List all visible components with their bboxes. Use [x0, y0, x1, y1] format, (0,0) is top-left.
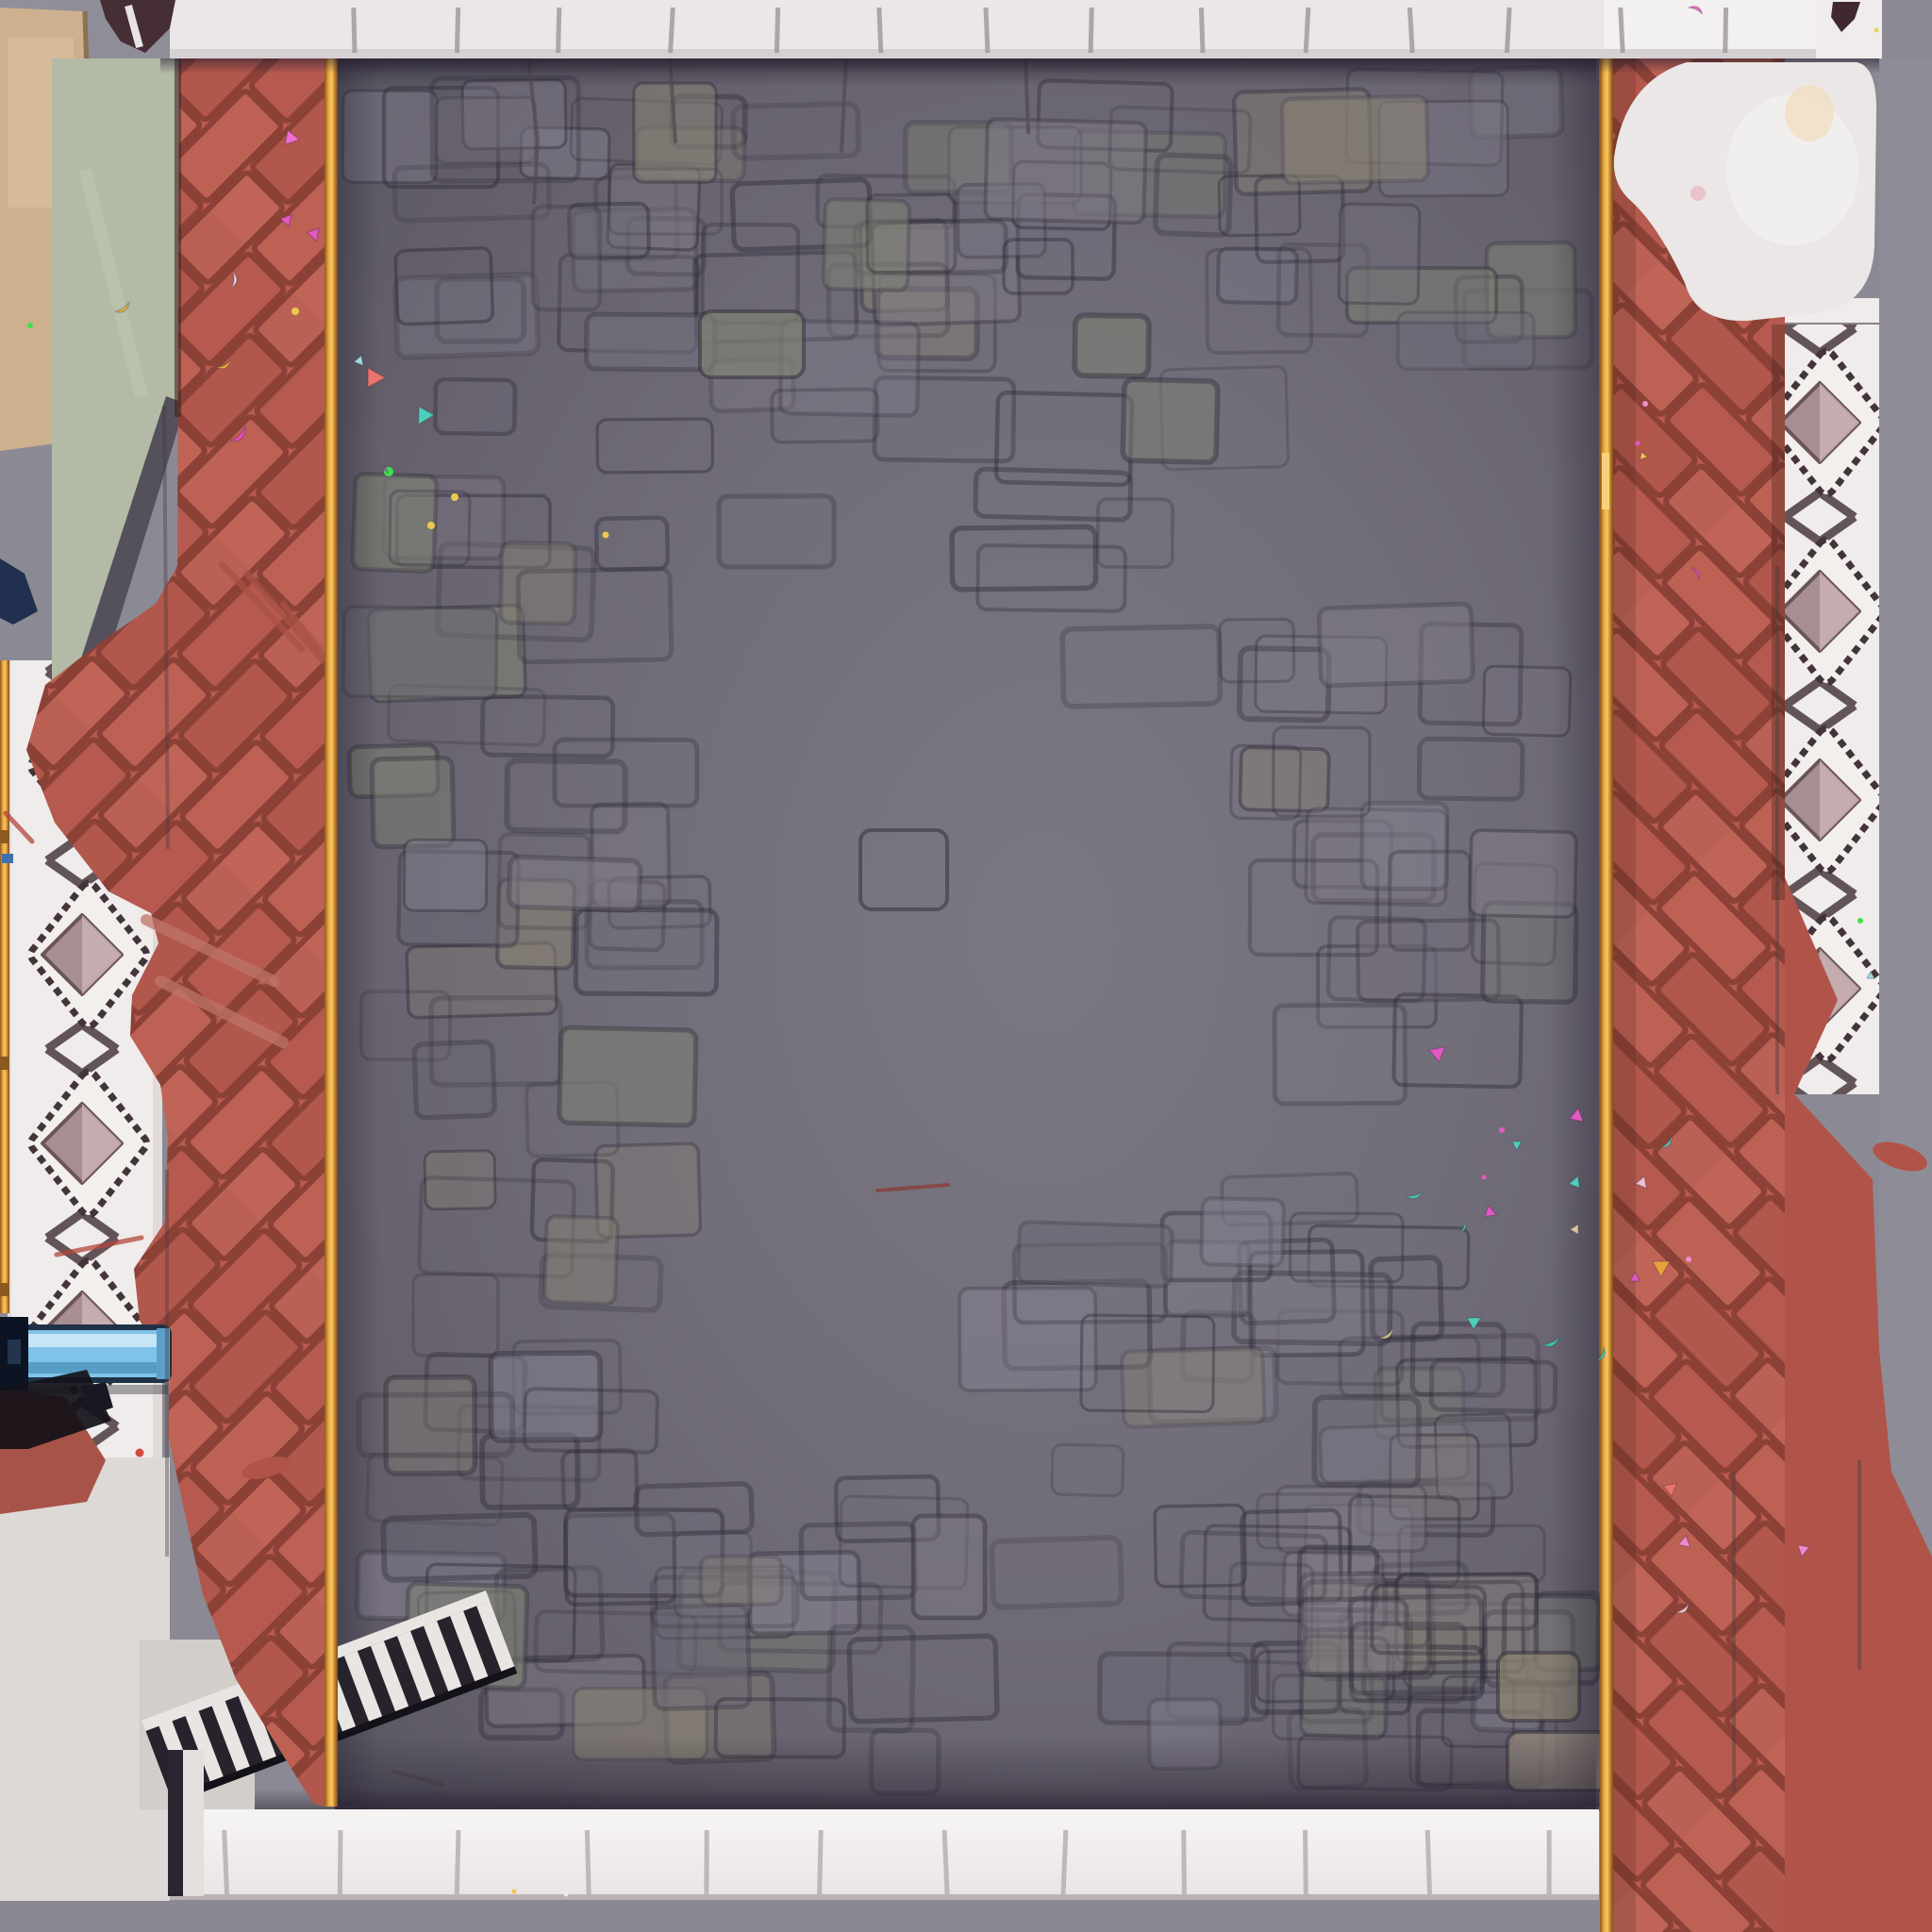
tile-joint	[354, 8, 355, 53]
tile-joint	[1409, 8, 1412, 53]
cobble	[575, 909, 717, 994]
tile-joint	[1306, 1830, 1307, 1894]
confetti-piece	[451, 493, 458, 501]
tile-joint	[340, 1830, 341, 1894]
cobble	[501, 542, 575, 624]
cobble	[1274, 1005, 1406, 1104]
cobble	[1362, 803, 1447, 889]
confetti-piece	[512, 1890, 517, 1894]
cobble	[1398, 312, 1534, 370]
gold-trim-left	[325, 58, 338, 1807]
confetti-piece	[427, 522, 435, 529]
tile-joint	[587, 1830, 589, 1894]
cobble	[1052, 1444, 1124, 1496]
top-tile-band	[160, 0, 1879, 58]
confetti-piece	[1874, 28, 1879, 33]
step-edge-light	[183, 1750, 204, 1896]
cobble	[1074, 315, 1149, 376]
cobble	[587, 314, 715, 370]
confetti-piece	[27, 323, 33, 328]
gray-column-right	[1879, 58, 1932, 1568]
bottom-tile-band	[57, 1789, 1604, 1900]
cobble	[1240, 747, 1329, 811]
cobble	[652, 1605, 750, 1709]
tile-joint	[457, 1830, 458, 1894]
tile-joint	[776, 8, 777, 53]
tile-joint	[1725, 8, 1726, 53]
feature-stone	[700, 311, 804, 377]
stone-left-shadow	[337, 58, 380, 1807]
tile-joint	[1507, 8, 1509, 53]
tile-joint	[1306, 8, 1308, 53]
cobble	[533, 207, 600, 309]
confetti-piece	[1482, 1175, 1487, 1180]
cobble	[959, 1288, 1096, 1391]
game-map-canvas[interactable]	[0, 0, 1932, 1932]
cobble	[701, 1557, 781, 1605]
tile-joint	[944, 1830, 947, 1894]
tile-fragment-topright	[1816, 0, 1882, 58]
cobble	[395, 274, 539, 358]
tile-joint	[820, 1830, 822, 1894]
cobble	[436, 97, 536, 163]
red-lane-right-shadow	[1611, 58, 1636, 1932]
tile-joint	[1427, 1830, 1429, 1894]
cobble	[913, 1516, 985, 1618]
top-seam-shadow	[160, 58, 1879, 74]
blob-peach-smudge	[1785, 85, 1834, 142]
confetti-piece	[1642, 401, 1648, 407]
cobble	[1397, 1574, 1537, 1628]
cobble	[1319, 604, 1473, 686]
tile-joint	[558, 8, 559, 53]
tile-joint	[1091, 8, 1091, 53]
cobble	[1314, 1397, 1419, 1486]
cobble	[1122, 1347, 1265, 1427]
tile-joint	[671, 8, 674, 53]
tile-joint	[1621, 8, 1623, 53]
red-lane-left-seam	[175, 58, 181, 417]
cobble	[1123, 379, 1218, 462]
pipe-highlight	[9, 1334, 160, 1347]
tile-joint	[879, 8, 881, 53]
confetti-piece	[291, 308, 299, 315]
step-edge-dark	[168, 1750, 183, 1896]
gold-trim-right	[1600, 58, 1613, 1932]
scallop-band-gold-edge	[0, 660, 9, 1313]
stone-right-shadow	[1549, 58, 1600, 1807]
tile-joint	[457, 8, 458, 53]
cobble	[544, 1216, 618, 1305]
tile-joint	[1184, 1830, 1185, 1894]
cobble	[1339, 204, 1420, 304]
cobble	[1282, 96, 1428, 183]
cobble	[991, 1538, 1122, 1607]
blob-pink-dot	[1690, 186, 1706, 201]
cobble	[372, 758, 454, 847]
cobble	[508, 857, 641, 911]
gold-glint	[1602, 453, 1609, 509]
confetti-piece	[564, 1892, 569, 1897]
confetti-piece	[603, 532, 609, 539]
tile-joint	[1201, 8, 1203, 53]
pipe-clamp-notch	[8, 1340, 21, 1364]
cobble	[1201, 1198, 1284, 1266]
confetti-piece	[136, 1449, 144, 1457]
cobble	[559, 1027, 696, 1125]
tile-joint	[225, 1830, 227, 1894]
blue-speck	[2, 854, 13, 863]
cobble	[1234, 1273, 1391, 1344]
confetti-piece	[1499, 1127, 1505, 1133]
confetti-piece	[1857, 918, 1863, 924]
tile-joint	[1063, 1830, 1066, 1894]
cobble	[386, 1377, 475, 1474]
cobble	[404, 840, 487, 911]
confetti-piece	[1686, 1257, 1691, 1262]
cobble	[414, 1041, 495, 1118]
tile-joint	[986, 8, 988, 53]
confetti-piece	[1636, 441, 1641, 446]
cobble	[1018, 1222, 1173, 1287]
cobble	[435, 379, 515, 434]
